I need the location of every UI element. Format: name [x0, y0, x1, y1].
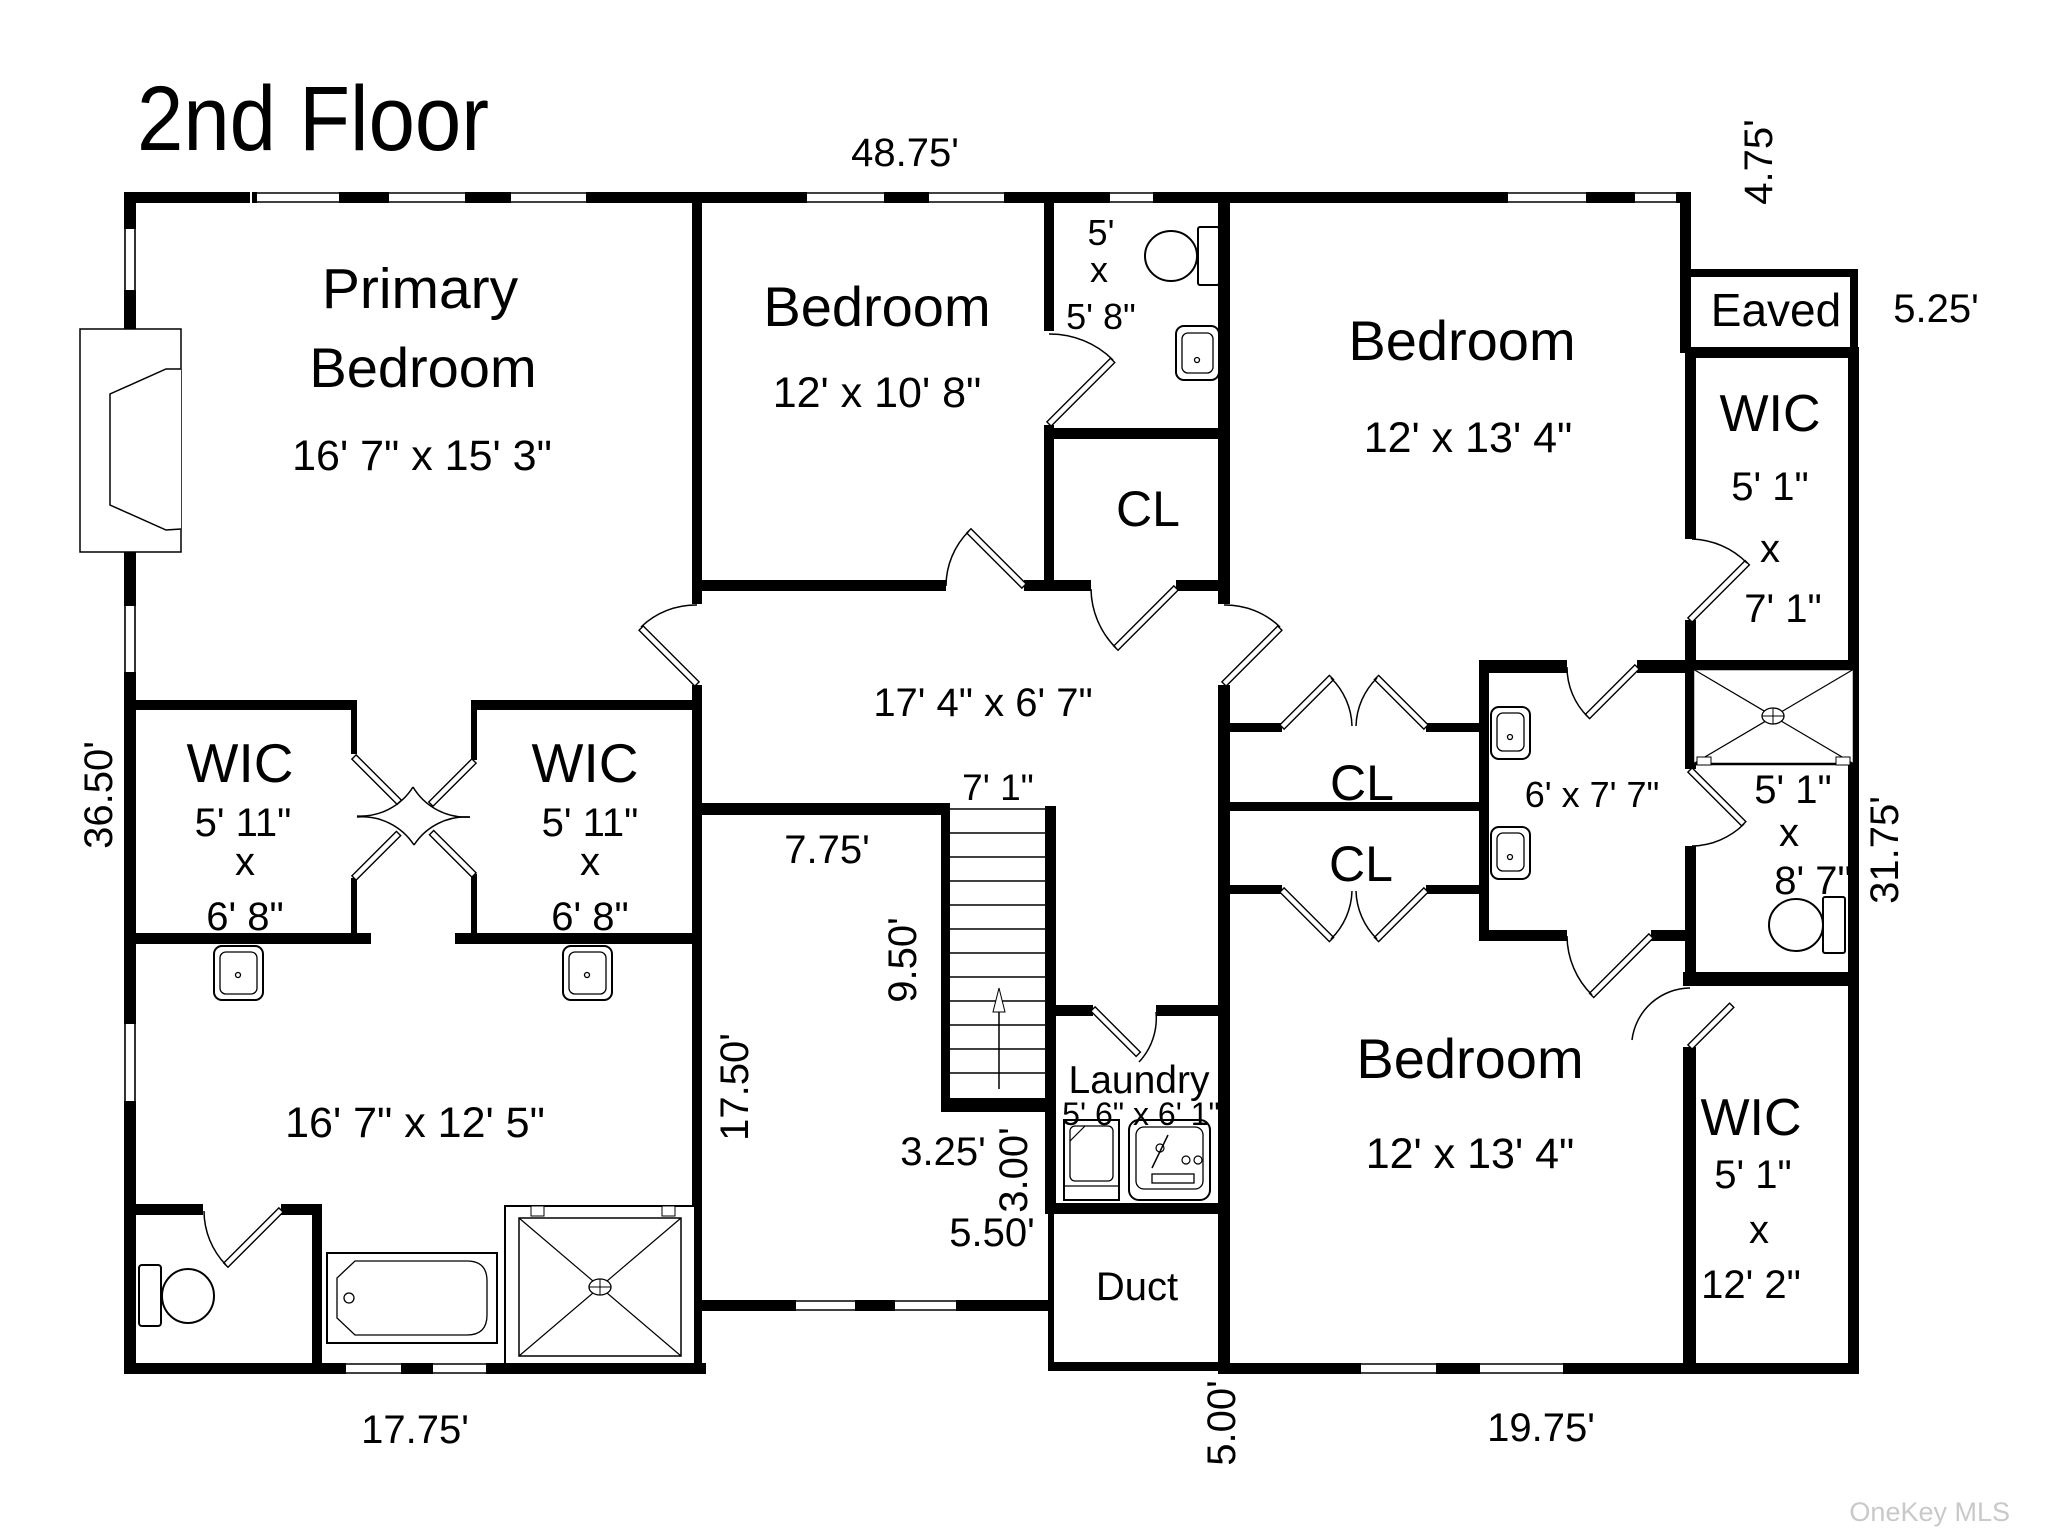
svg-text:5.25': 5.25' [1893, 287, 1979, 331]
svg-text:Primary: Primary [322, 257, 519, 321]
svg-text:Eaved: Eaved [1711, 284, 1841, 336]
svg-text:5.50': 5.50' [949, 1211, 1035, 1255]
svg-text:CL: CL [1329, 836, 1393, 892]
svg-text:5' 6" x 6' 1": 5' 6" x 6' 1" [1062, 1096, 1220, 1132]
svg-text:WIC: WIC [1700, 1089, 1801, 1147]
svg-text:36.50': 36.50' [77, 741, 121, 849]
svg-text:5' 1": 5' 1" [1714, 1153, 1791, 1197]
svg-text:4.75': 4.75' [1737, 119, 1781, 205]
svg-text:8' 7": 8' 7" [1774, 859, 1851, 903]
svg-text:7' 1": 7' 1" [1744, 587, 1821, 631]
svg-text:48.75': 48.75' [851, 131, 959, 175]
svg-text:x: x [580, 840, 600, 884]
svg-text:Bedroom: Bedroom [1348, 309, 1575, 372]
svg-text:19.75': 19.75' [1487, 1406, 1595, 1450]
svg-text:Bedroom: Bedroom [763, 275, 990, 338]
svg-text:7' 1": 7' 1" [962, 767, 1034, 808]
svg-text:x: x [1779, 811, 1799, 855]
svg-text:6' x 7' 7": 6' x 7' 7" [1525, 774, 1660, 815]
svg-text:5' 11": 5' 11" [195, 801, 292, 845]
svg-text:31.75': 31.75' [1863, 796, 1907, 904]
svg-text:OneKey MLS: OneKey MLS [1849, 1497, 2010, 1527]
svg-text:CL: CL [1330, 755, 1394, 811]
svg-text:3.00': 3.00' [992, 1127, 1036, 1213]
svg-text:3.25': 3.25' [900, 1130, 986, 1174]
svg-text:WIC: WIC [187, 732, 294, 794]
svg-text:12' x 10' 8": 12' x 10' 8" [773, 369, 982, 417]
svg-text:12' x 13' 4": 12' x 13' 4" [1366, 1130, 1575, 1178]
svg-text:x: x [1749, 1208, 1769, 1252]
svg-text:5' 8": 5' 8" [1066, 296, 1136, 337]
svg-text:5.00': 5.00' [1200, 1380, 1244, 1466]
svg-text:5' 1": 5' 1" [1754, 768, 1831, 812]
svg-text:x: x [1090, 249, 1108, 290]
svg-text:5' 11": 5' 11" [542, 801, 639, 845]
svg-text:WIC: WIC [1719, 385, 1820, 443]
svg-text:16' 7" x 15' 3": 16' 7" x 15' 3" [292, 432, 552, 480]
svg-text:x: x [235, 840, 255, 884]
svg-text:12' x 13' 4": 12' x 13' 4" [1364, 414, 1573, 462]
svg-text:12' 2": 12' 2" [1701, 1263, 1801, 1307]
svg-text:17.50': 17.50' [713, 1033, 757, 1141]
svg-text:CL: CL [1116, 481, 1180, 537]
svg-text:WIC: WIC [532, 732, 639, 794]
svg-text:7.75': 7.75' [784, 828, 870, 872]
svg-text:5' 1": 5' 1" [1731, 465, 1808, 509]
svg-text:Bedroom: Bedroom [1356, 1027, 1583, 1090]
svg-text:2nd Floor: 2nd Floor [137, 68, 489, 170]
svg-text:17' 4" x 6' 7": 17' 4" x 6' 7" [873, 681, 1092, 725]
svg-text:6' 8": 6' 8" [551, 895, 628, 939]
svg-text:16' 7" x 12' 5": 16' 7" x 12' 5" [285, 1099, 545, 1147]
svg-text:x: x [1760, 527, 1780, 571]
svg-text:9.50': 9.50' [881, 917, 925, 1003]
svg-text:Duct: Duct [1096, 1265, 1178, 1309]
svg-text:Bedroom: Bedroom [309, 336, 536, 399]
svg-text:5': 5' [1088, 212, 1115, 253]
svg-text:17.75': 17.75' [361, 1408, 469, 1452]
svg-text:6' 8": 6' 8" [206, 895, 283, 939]
